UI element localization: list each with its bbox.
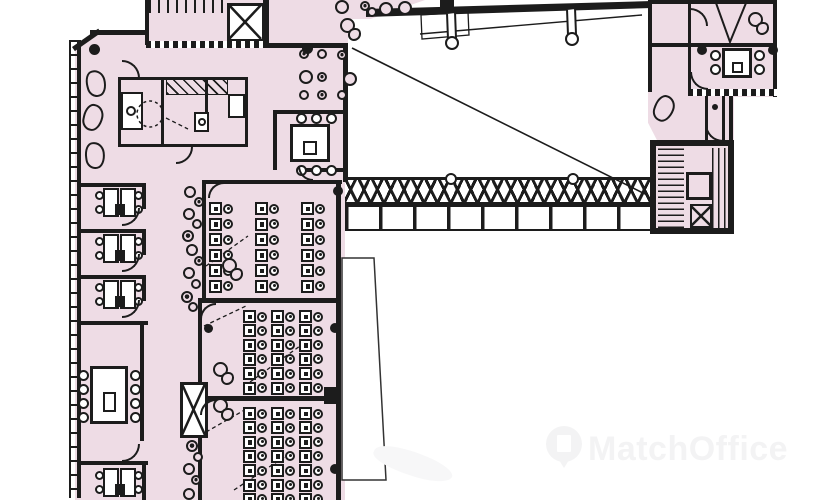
corridor-stool: [183, 463, 195, 475]
meeting-chair: [311, 113, 322, 124]
task-chair: [257, 451, 267, 461]
desk: [243, 353, 256, 366]
meeting-table: [290, 124, 330, 162]
desk: [271, 479, 284, 492]
desk: [209, 280, 222, 293]
cafe-chair: [337, 50, 347, 60]
corridor-stool: [183, 208, 195, 220]
desk: [299, 339, 312, 352]
task-chair: [285, 480, 295, 490]
task-chair: [313, 312, 323, 322]
task-chair: [257, 409, 267, 419]
desk-unit: [301, 233, 325, 247]
task-chair: [285, 383, 295, 393]
desk-unit: [255, 233, 279, 247]
task-chair: [257, 312, 267, 322]
task-chair: [257, 354, 267, 364]
truss-node: [567, 173, 579, 185]
task-chair: [223, 204, 233, 214]
cafe-table: [335, 0, 349, 14]
task-chair: [269, 266, 279, 276]
meeting-chair: [296, 113, 307, 124]
corridor-stool: [194, 197, 204, 207]
task-chair: [313, 423, 323, 433]
desk-unit: [243, 339, 267, 353]
column-base: [446, 37, 458, 49]
desk: [271, 382, 284, 395]
cafe-chair: [337, 90, 347, 100]
desk: [271, 407, 284, 420]
desk-unit: [299, 464, 323, 478]
stair-treads: [149, 0, 225, 13]
office-wall: [78, 183, 146, 187]
corridor-stool: [183, 267, 195, 279]
task-chair: [285, 340, 295, 350]
task-chair: [313, 369, 323, 379]
task-chair: [313, 326, 323, 336]
desk: [301, 264, 314, 277]
desk-unit: [301, 249, 325, 263]
task-chair: [313, 466, 323, 476]
desk: [243, 367, 256, 380]
desk: [299, 367, 312, 380]
meeting-chair: [130, 370, 141, 381]
corridor-stool: [186, 244, 198, 256]
task-chair: [285, 354, 295, 364]
desk-unit: [299, 407, 323, 421]
desk: [243, 310, 256, 323]
desk-unit: [243, 310, 267, 324]
desk-unit: [301, 202, 325, 216]
cafe-table: [343, 72, 357, 86]
task-chair: [313, 494, 323, 500]
wall: [198, 298, 338, 303]
task-chair: [257, 423, 267, 433]
desk: [301, 202, 314, 215]
desk-unit: [243, 353, 267, 367]
desk-unit: [243, 421, 267, 435]
office-wall: [78, 275, 146, 279]
truss-node: [445, 173, 457, 185]
desk: [271, 339, 284, 352]
meeting-chair: [78, 398, 89, 409]
task-chair: [257, 494, 267, 500]
skylight-frame: [421, 12, 469, 39]
task-chair: [257, 369, 267, 379]
cafe-table: [299, 70, 313, 84]
column-square: [440, 0, 454, 8]
desk: [255, 280, 268, 293]
office-wall: [78, 321, 148, 325]
plant-squiggle: [340, 18, 355, 33]
desk: [243, 339, 256, 352]
west-window-wall: [69, 40, 81, 498]
desk-unit: [271, 367, 295, 381]
desk: [209, 218, 222, 231]
elevator-right: [686, 172, 712, 200]
task-chair: [313, 354, 323, 364]
task-chair: [257, 437, 267, 447]
kitchen-chair: [126, 106, 136, 116]
desk: [209, 264, 222, 277]
task-chair: [285, 326, 295, 336]
desk-unit: [243, 324, 267, 338]
kitchen-wall: [161, 77, 164, 147]
duct-box: [690, 204, 712, 228]
column-base: [566, 33, 578, 45]
desk: [299, 450, 312, 463]
column-dot: [89, 44, 100, 55]
desk: [243, 421, 256, 434]
watermark-text: MatchOffice: [588, 430, 788, 469]
desk-unit: [299, 310, 323, 324]
desk-unit: [271, 324, 295, 338]
task-chair: [313, 340, 323, 350]
task-chair: [223, 281, 233, 291]
right-wing-hatch-wall: [688, 89, 777, 96]
desk-unit: [299, 450, 323, 464]
column-dot: [330, 464, 340, 474]
building-icon: [557, 435, 571, 452]
desk: [299, 464, 312, 477]
desk-unit: [301, 280, 325, 294]
meeting-chair: [130, 384, 141, 395]
task-chair: [269, 219, 279, 229]
desk: [299, 479, 312, 492]
desk: [243, 382, 256, 395]
task-chair: [285, 369, 295, 379]
desk-unit: [299, 421, 323, 435]
wall: [90, 30, 148, 35]
column-dot: [302, 43, 313, 54]
stair-run: [658, 184, 684, 228]
desk: [301, 218, 314, 231]
desk-unit: [209, 202, 233, 216]
desk-unit: [299, 353, 323, 367]
desk-unit: [301, 218, 325, 232]
task-chair: [285, 466, 295, 476]
desk: [243, 407, 256, 420]
desk-unit: [271, 493, 295, 500]
task-chair: [315, 266, 325, 276]
desk: [255, 202, 268, 215]
corridor-stool: [193, 452, 203, 462]
hanging-column: [447, 12, 456, 39]
task-chair: [285, 312, 295, 322]
desk-unit: [243, 382, 267, 396]
shaft-wall: [705, 96, 708, 146]
corridor-stool: [191, 279, 201, 289]
wall: [265, 0, 269, 45]
task-chair: [315, 219, 325, 229]
corridor-stool: [182, 230, 194, 242]
meeting-chair: [754, 64, 765, 75]
desk-unit: [255, 249, 279, 263]
desk: [299, 324, 312, 337]
glazed-truss-bridge: [345, 177, 650, 234]
meeting-room-wall: [140, 321, 144, 441]
task-chair: [223, 219, 233, 229]
desk-unit: [271, 450, 295, 464]
corridor-stool: [188, 302, 198, 312]
meeting-chair: [78, 412, 89, 423]
task-chair: [313, 383, 323, 393]
desk-unit: [243, 493, 267, 500]
cafe-chair: [299, 90, 309, 100]
task-chair: [313, 437, 323, 447]
desk-unit: [243, 464, 267, 478]
corridor-stool: [183, 488, 195, 500]
desk-unit: [299, 367, 323, 381]
desk: [299, 493, 312, 500]
desk: [271, 464, 284, 477]
plant-squiggle: [222, 258, 237, 273]
task-chair: [315, 235, 325, 245]
desk: [209, 249, 222, 262]
desk-unit: [299, 339, 323, 353]
stair-run: [712, 148, 728, 228]
task-chair: [269, 235, 279, 245]
desk-unit: [271, 339, 295, 353]
watermark-swoosh: [370, 438, 455, 491]
desk: [243, 493, 256, 500]
gallery-edge: [420, 15, 642, 34]
desk-unit: [271, 353, 295, 367]
corridor-stool: [186, 440, 198, 452]
meeting-chair: [710, 64, 721, 75]
desk-unit: [271, 310, 295, 324]
meeting-chair: [326, 113, 337, 124]
desk: [299, 353, 312, 366]
office-wall: [78, 461, 148, 465]
desk: [299, 382, 312, 395]
task-chair: [269, 250, 279, 260]
cafe-chair: [317, 72, 327, 82]
corridor-stool: [191, 475, 201, 485]
desk: [299, 407, 312, 420]
desk: [243, 479, 256, 492]
task-chair: [313, 480, 323, 490]
task-chair: [285, 494, 295, 500]
desk-unit: [299, 493, 323, 500]
desk-unit: [255, 264, 279, 278]
desk: [301, 249, 314, 262]
corridor-stool: [194, 256, 204, 266]
corridor-stool: [192, 219, 202, 229]
task-chair: [257, 326, 267, 336]
desk-unit: [255, 202, 279, 216]
task-chair: [285, 451, 295, 461]
desk: [299, 421, 312, 434]
hatched-wall: [146, 41, 268, 48]
meeting-chair: [130, 412, 141, 423]
task-chair: [285, 409, 295, 419]
desk-unit: [299, 382, 323, 396]
plant-squiggle: [213, 362, 228, 377]
desk-unit: [209, 280, 233, 294]
glazing-mullions: [345, 207, 650, 231]
corridor-stool: [184, 186, 196, 198]
sink-bowl: [198, 118, 206, 126]
desk-unit: [271, 479, 295, 493]
cafe-table: [398, 1, 412, 15]
truss-web: [345, 179, 650, 202]
office-desk-pair: [96, 468, 143, 498]
desk: [255, 233, 268, 246]
desk: [271, 436, 284, 449]
desk: [299, 310, 312, 323]
desk-unit: [271, 382, 295, 396]
desk: [209, 202, 222, 215]
office-wall: [78, 229, 146, 233]
hanging-column: [567, 8, 576, 35]
matchoffice-pin-icon: [546, 426, 582, 462]
desk-unit: [271, 407, 295, 421]
task-chair: [257, 480, 267, 490]
desk-unit: [243, 407, 267, 421]
desk: [301, 280, 314, 293]
task-chair: [315, 250, 325, 260]
column-dot: [697, 45, 707, 55]
openplan-east-wall: [336, 180, 341, 500]
task-chair: [257, 340, 267, 350]
column-dot: [768, 45, 778, 55]
desk-unit: [255, 218, 279, 232]
task-chair: [269, 204, 279, 214]
meeting-top-wall: [273, 112, 277, 170]
elevator-top: [227, 3, 265, 42]
desk: [243, 450, 256, 463]
desk: [271, 493, 284, 500]
desk: [271, 450, 284, 463]
desk: [271, 421, 284, 434]
cafe-chair: [317, 49, 327, 59]
task-chair: [315, 204, 325, 214]
desk-unit: [209, 233, 233, 247]
meeting-chair: [710, 50, 721, 61]
desk-unit: [271, 421, 295, 435]
desk: [243, 324, 256, 337]
column-dot: [330, 323, 340, 333]
kitchen-counter: [166, 79, 228, 95]
fridge: [228, 94, 245, 118]
desk-unit: [243, 436, 267, 450]
column-dot: [333, 186, 343, 196]
meeting-chair: [78, 384, 89, 395]
desk-unit: [209, 218, 233, 232]
desk: [271, 353, 284, 366]
desk-unit: [299, 479, 323, 493]
task-chair: [285, 437, 295, 447]
right-wing-mid-wall: [652, 43, 775, 47]
meeting-chair: [754, 50, 765, 61]
cafe-chair: [367, 7, 377, 17]
task-chair: [315, 281, 325, 291]
desk: [299, 436, 312, 449]
desk: [243, 464, 256, 477]
desk-unit: [243, 450, 267, 464]
desk: [255, 249, 268, 262]
desk: [243, 436, 256, 449]
desk-unit: [301, 264, 325, 278]
meeting-table: [722, 48, 752, 78]
meeting-table: [90, 366, 128, 424]
task-chair: [223, 235, 233, 245]
task-chair: [313, 451, 323, 461]
stair-run: [658, 148, 684, 180]
desk: [255, 264, 268, 277]
desk-unit: [271, 436, 295, 450]
column-dot: [204, 324, 213, 333]
desk-unit: [243, 367, 267, 381]
task-chair: [313, 409, 323, 419]
desk-screen: [115, 484, 125, 495]
desk: [255, 218, 268, 231]
wall: [729, 96, 733, 146]
floor-plan-canvas: MatchOffice: [0, 0, 825, 500]
desk-unit: [299, 324, 323, 338]
desk-unit: [243, 479, 267, 493]
cafe-table: [379, 2, 393, 16]
plant-squiggle: [213, 398, 228, 413]
desk-unit: [271, 464, 295, 478]
task-chair: [269, 281, 279, 291]
atrium-diagonal: [352, 48, 645, 194]
meeting-chair: [130, 398, 141, 409]
meeting-chair: [326, 165, 337, 176]
task-chair: [257, 383, 267, 393]
desk-unit: [255, 280, 279, 294]
task-chair: [285, 423, 295, 433]
desk-unit: [299, 436, 323, 450]
column-dot: [712, 104, 718, 110]
desk: [271, 324, 284, 337]
plant-squiggle: [748, 12, 763, 27]
right-wing-north-wall: [648, 0, 777, 4]
meeting-chair: [78, 370, 89, 381]
task-chair: [257, 466, 267, 476]
desk: [209, 233, 222, 246]
desk: [271, 310, 284, 323]
column-square: [324, 387, 341, 404]
desk: [301, 233, 314, 246]
cafe-chair: [317, 90, 327, 100]
desk: [271, 367, 284, 380]
